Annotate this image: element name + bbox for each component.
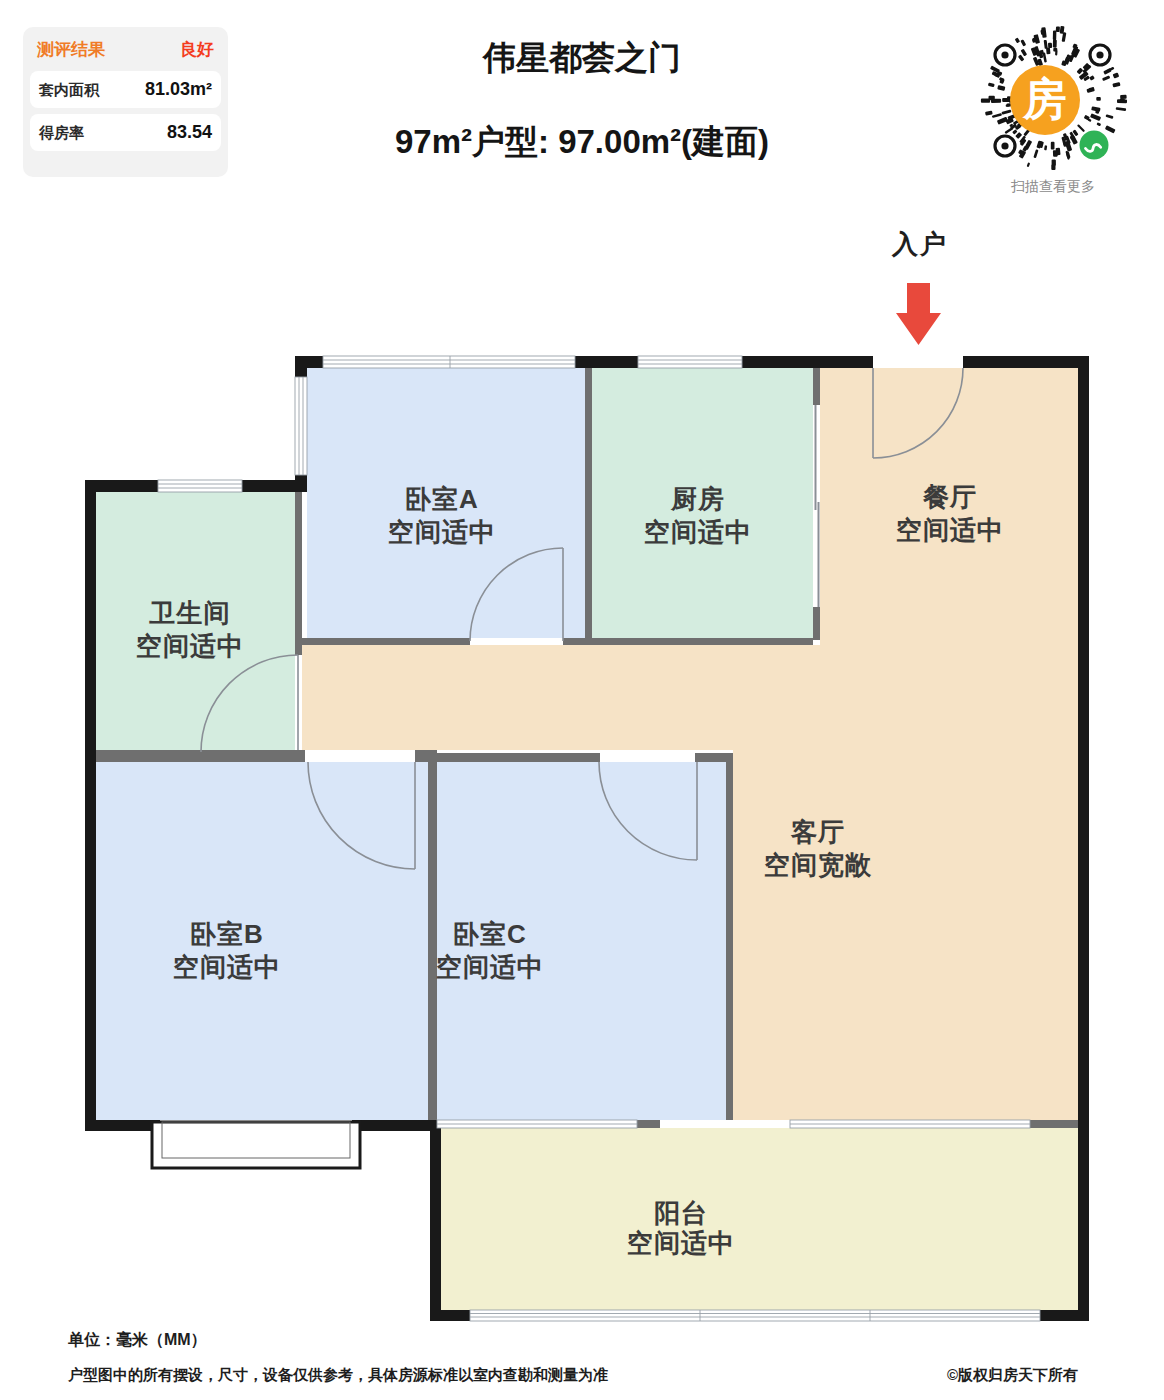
- entry-arrow-icon: [896, 283, 941, 345]
- unit-note: 单位：毫米（MM）: [68, 1330, 207, 1351]
- kitchen-name: 厨房: [670, 484, 725, 514]
- bedroom-a-status: 空间适中: [388, 517, 496, 547]
- hallway-floor: [302, 645, 733, 750]
- living-balcony-window-right: [790, 1120, 1030, 1128]
- floor-plan: 入户 卧室A 空间适中 厨房 空间适中 餐厅 空间适中 卫生间 空间适中 客厅 …: [0, 0, 1164, 1400]
- bedroom-a-left-window: [295, 377, 307, 475]
- bedroom-a-top-window: [323, 356, 575, 368]
- copyright: ©版权归房天下所有: [947, 1366, 1078, 1385]
- balcony-name: 阳台: [654, 1198, 708, 1228]
- kitchen-top-window: [638, 356, 742, 368]
- bedroom-b-name: 卧室B: [190, 919, 264, 949]
- dining-name: 餐厅: [922, 482, 977, 512]
- dining-status: 空间适中: [896, 515, 1004, 545]
- entry-label: 入户: [891, 229, 948, 259]
- bedroom-b-status: 空间适中: [173, 952, 281, 982]
- living-floor: [733, 645, 823, 1120]
- bathroom-top-window: [158, 480, 242, 492]
- dining-living-floor: [820, 368, 1078, 1120]
- balcony-floor: [441, 1128, 1078, 1310]
- disclaimer: 户型图中的所有摆设，尺寸，设备仅供参考，具体房源标准以室内查勘和测量为准: [68, 1366, 608, 1385]
- kitchen-status: 空间适中: [644, 517, 752, 547]
- balcony-bottom-window: [470, 1310, 1040, 1321]
- page: 测评结果 良好 套内面积 81.03m² 得房率 83.54 伟星都荟之门 97…: [0, 0, 1164, 1400]
- bay-window: [152, 1122, 360, 1168]
- bedroom-c-name: 卧室C: [453, 919, 527, 949]
- bedroom-a-name: 卧室A: [405, 484, 479, 514]
- bathroom-name: 卫生间: [149, 598, 231, 628]
- bedroom-c-status: 空间适中: [436, 952, 544, 982]
- balcony-status: 空间适中: [627, 1228, 735, 1258]
- living-status: 空间宽敞: [764, 850, 872, 880]
- living-name: 客厅: [790, 817, 845, 847]
- living-balcony-window-left: [437, 1120, 637, 1128]
- bathroom-status: 空间适中: [136, 631, 244, 661]
